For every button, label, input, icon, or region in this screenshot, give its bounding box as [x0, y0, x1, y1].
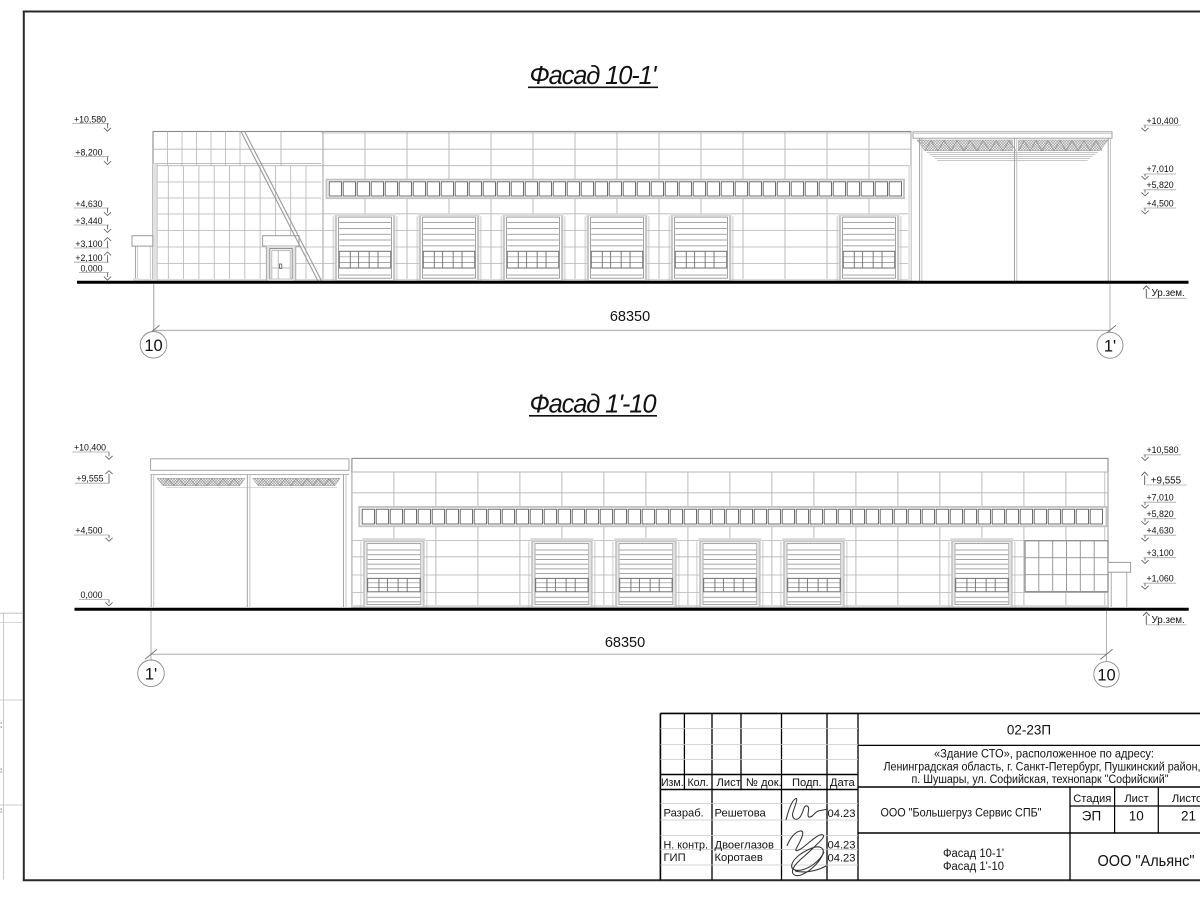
svg-text:ООО "Альянс": ООО "Альянс" [1098, 853, 1195, 870]
svg-text:+5,820: +5,820 [1147, 180, 1174, 190]
svg-text:Разраб.: Разраб. [664, 808, 704, 820]
svg-text:+10,580: +10,580 [1147, 445, 1179, 455]
svg-text:04.23: 04.23 [828, 840, 856, 852]
svg-text:Ур.зем.: Ур.зем. [1152, 288, 1185, 299]
svg-text:Двоеглазов: Двоеглазов [715, 840, 775, 852]
svg-text:Фасад 10-1': Фасад 10-1' [530, 62, 658, 90]
svg-text:ГИП: ГИП [664, 852, 686, 864]
svg-text:1': 1' [145, 665, 157, 683]
svg-text:№ док.: № док. [746, 777, 782, 789]
svg-text:Ленинградская область, г. Санк: Ленинградская область, г. Санкт-Петербур… [884, 762, 1200, 774]
svg-text:+4,500: +4,500 [75, 526, 102, 536]
svg-text:+7,010: +7,010 [1147, 164, 1174, 174]
svg-text:ООО "Большегруз Сервис СПБ": ООО "Большегруз Сервис СПБ" [881, 806, 1042, 820]
svg-text:+10,580: +10,580 [74, 114, 106, 124]
svg-text:10: 10 [1097, 666, 1115, 684]
svg-text:04.23: 04.23 [828, 853, 856, 865]
svg-text:+10,400: +10,400 [1147, 116, 1179, 126]
svg-text:Н. контр.: Н. контр. [664, 840, 709, 852]
svg-text:Фасад 1'-10: Фасад 1'-10 [530, 391, 657, 419]
svg-text:+4,500: +4,500 [1147, 199, 1174, 209]
svg-text:Лист: Лист [717, 777, 741, 789]
svg-text:ЭП: ЭП [1082, 809, 1101, 824]
svg-text:Стадия: Стадия [1073, 793, 1111, 805]
svg-text:21: 21 [1181, 809, 1196, 824]
svg-text:Изм.: Изм. [661, 777, 684, 789]
svg-text:Листов: Листов [1172, 793, 1200, 805]
svg-text:Кол.: Кол. [688, 777, 709, 789]
svg-text:+2,100: +2,100 [75, 253, 102, 263]
svg-text:1': 1' [1104, 337, 1116, 355]
svg-text:«Здание СТО», расположенное по: «Здание СТО», расположенное по адресу: [934, 749, 1154, 761]
svg-text:+3,440: +3,440 [75, 216, 102, 226]
svg-text:+4,630: +4,630 [1147, 526, 1174, 536]
svg-text:+1,060: +1,060 [1147, 574, 1174, 584]
svg-text:+7,010: +7,010 [1147, 493, 1174, 503]
svg-text:+8,200: +8,200 [75, 147, 102, 157]
svg-text:п. Шушары, ул. Софийская, техн: п. Шушары, ул. Софийская, технопарк "Соф… [912, 774, 1169, 786]
svg-text:Дата: Дата [830, 777, 856, 789]
svg-text:0,000: 0,000 [80, 590, 102, 600]
svg-text:+3,100: +3,100 [1147, 548, 1174, 558]
svg-text:Решетова: Решетова [715, 808, 767, 820]
svg-text:+3,100: +3,100 [75, 239, 102, 249]
svg-text:04.23: 04.23 [828, 808, 856, 820]
svg-text:Лист: Лист [1124, 793, 1148, 805]
svg-text:+9,555: +9,555 [76, 474, 103, 484]
svg-text:Ур.зем.: Ур.зем. [1152, 615, 1185, 626]
svg-text:10: 10 [144, 337, 162, 355]
svg-text:10: 10 [1129, 809, 1144, 824]
svg-text:02-23П: 02-23П [1007, 723, 1051, 738]
svg-text:0,000: 0,000 [80, 263, 102, 273]
svg-text:Подп.: Подп. [792, 777, 822, 789]
svg-text:+5,820: +5,820 [1147, 509, 1174, 519]
svg-text:68350: 68350 [605, 635, 645, 651]
svg-text:Фасад 1'-10: Фасад 1'-10 [943, 861, 1004, 873]
svg-text:68350: 68350 [610, 309, 650, 325]
svg-text:Фасад 10-1': Фасад 10-1' [943, 848, 1004, 860]
svg-text:+4,630: +4,630 [75, 199, 102, 209]
svg-text:+10,400: +10,400 [74, 442, 106, 452]
svg-text:Коротаев: Коротаев [715, 852, 763, 864]
